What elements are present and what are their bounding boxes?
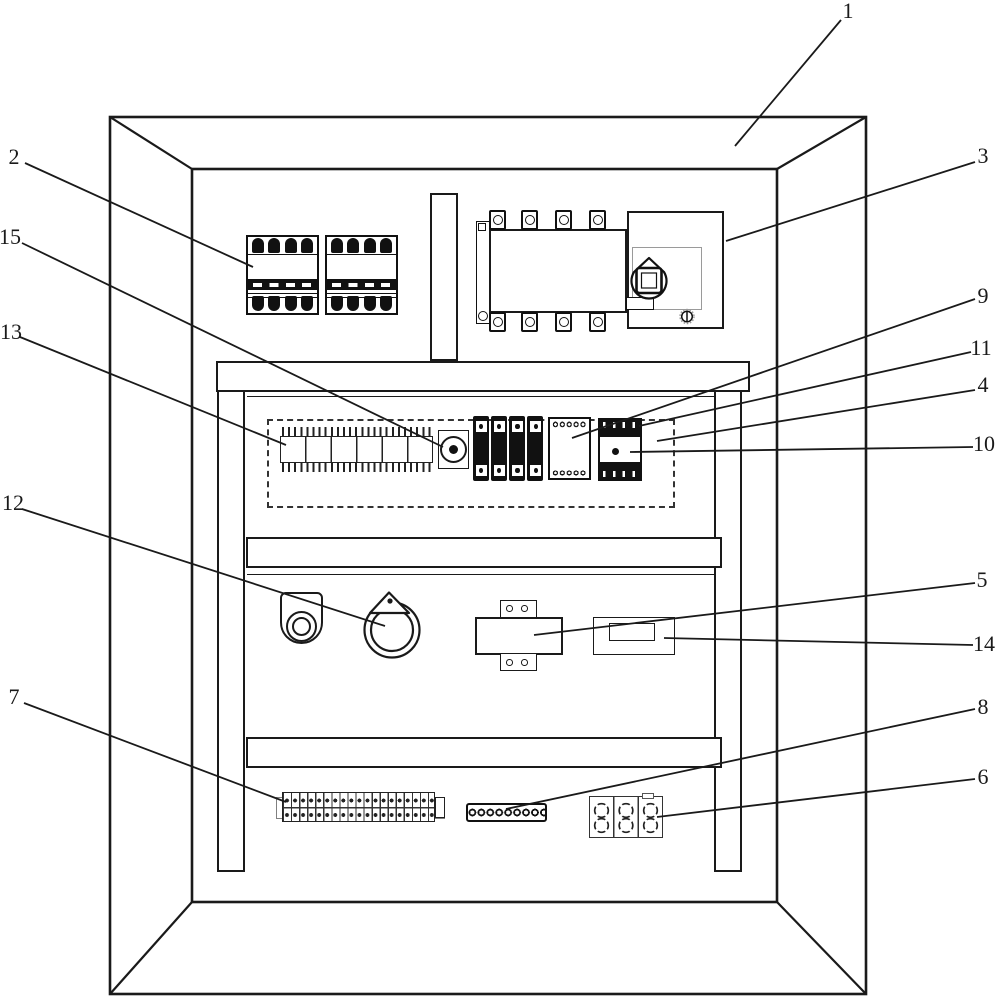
leader-line-4 bbox=[657, 390, 975, 441]
callout-label-7: 7 bbox=[9, 686, 20, 708]
leader-line-6 bbox=[657, 779, 975, 817]
clover-hole bbox=[594, 803, 609, 818]
enclosure-screw bbox=[680, 310, 694, 324]
callout-label-8: 8 bbox=[978, 696, 989, 718]
callout-label-4: 4 bbox=[978, 374, 989, 396]
leader-line-12 bbox=[22, 509, 385, 626]
socket-holes bbox=[594, 803, 658, 833]
callout-label-15: 15 bbox=[0, 226, 21, 248]
leader-line-10 bbox=[630, 447, 973, 452]
switch-rotary-handle bbox=[632, 258, 667, 299]
clover-hole bbox=[594, 818, 609, 833]
leader-line-15 bbox=[22, 243, 443, 447]
callout-label-14: 14 bbox=[973, 633, 995, 655]
callout-label-3: 3 bbox=[978, 145, 989, 167]
overlay-graphics bbox=[0, 0, 998, 1000]
leader-line-14 bbox=[664, 638, 973, 645]
buzzer-indicator bbox=[365, 593, 420, 658]
clover-hole bbox=[619, 818, 634, 833]
leader-line-3 bbox=[726, 162, 975, 241]
leader-lines bbox=[20, 20, 975, 817]
callout-label-1: 1 bbox=[843, 0, 854, 22]
leader-line-2 bbox=[25, 163, 253, 267]
clover-hole bbox=[643, 803, 658, 818]
leader-line-1 bbox=[735, 20, 841, 146]
clover-hole bbox=[643, 818, 658, 833]
callout-label-10: 10 bbox=[973, 433, 995, 455]
callout-label-9: 9 bbox=[978, 285, 989, 307]
leader-line-13 bbox=[20, 337, 286, 445]
leader-line-8 bbox=[506, 709, 975, 809]
callout-label-2: 2 bbox=[9, 146, 20, 168]
callout-label-12: 12 bbox=[2, 492, 24, 514]
leader-line-9 bbox=[572, 299, 975, 438]
patent-figure-canvas: 1 2 3 4 5 6 7 8 9 10 11 12 13 14 15 bbox=[0, 0, 998, 1000]
callout-label-11: 11 bbox=[970, 337, 991, 359]
callout-label-6: 6 bbox=[978, 766, 989, 788]
leader-line-5 bbox=[534, 583, 975, 635]
leader-line-7 bbox=[24, 703, 286, 802]
callout-label-13: 13 bbox=[0, 321, 22, 343]
clover-hole bbox=[619, 803, 634, 818]
callout-label-5: 5 bbox=[977, 569, 988, 591]
leader-line-11 bbox=[639, 352, 971, 426]
